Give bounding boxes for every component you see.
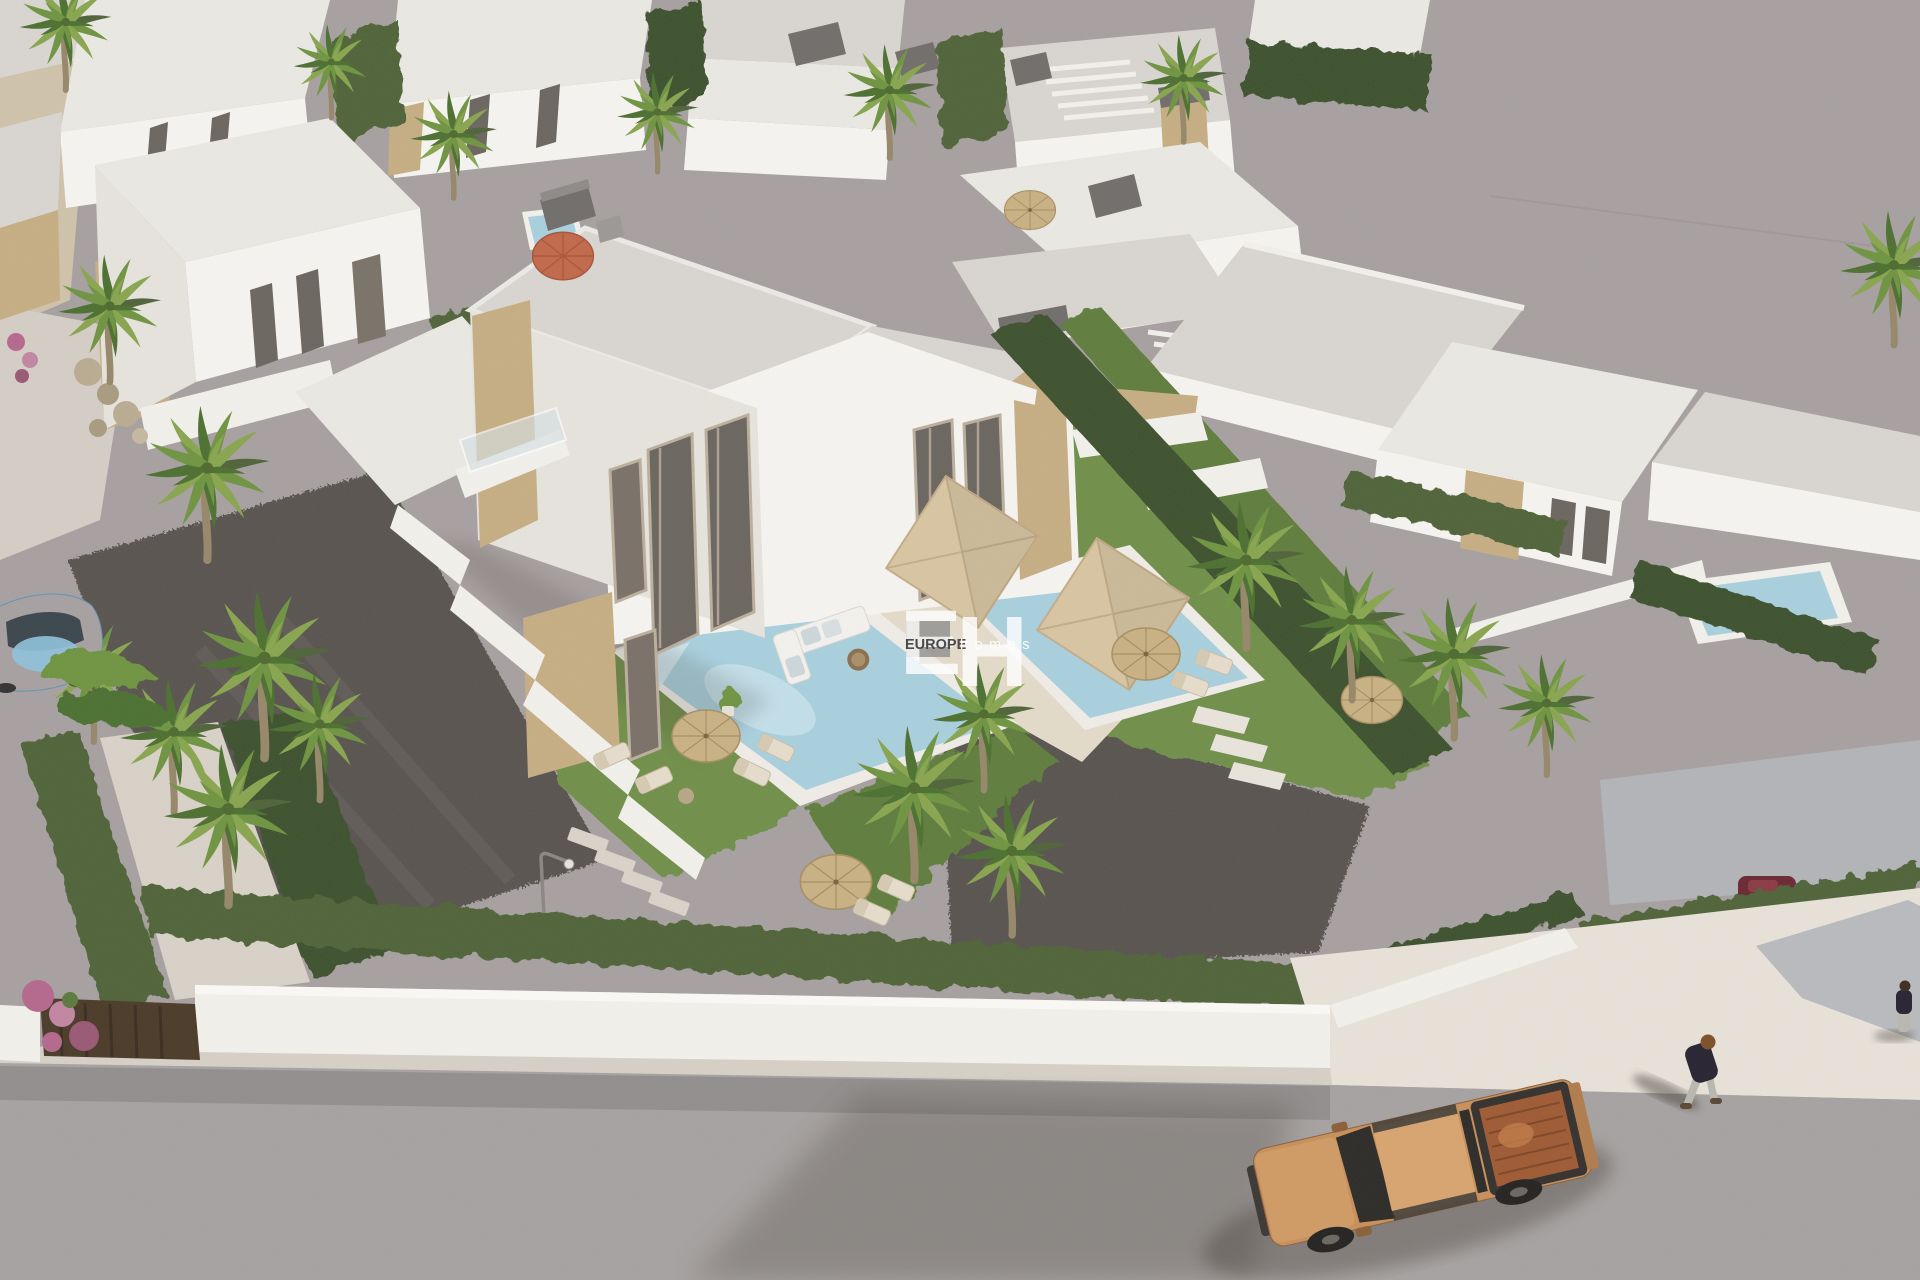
- watermark-suffix: homes: [960, 637, 1036, 653]
- render-stage: E H EUROPE homes: [0, 0, 1920, 1280]
- watermark-brand: EUROPE: [905, 637, 967, 653]
- watermark: E H EUROPE homes: [900, 592, 1036, 708]
- aerial-render: E H EUROPE homes: [0, 0, 1920, 1280]
